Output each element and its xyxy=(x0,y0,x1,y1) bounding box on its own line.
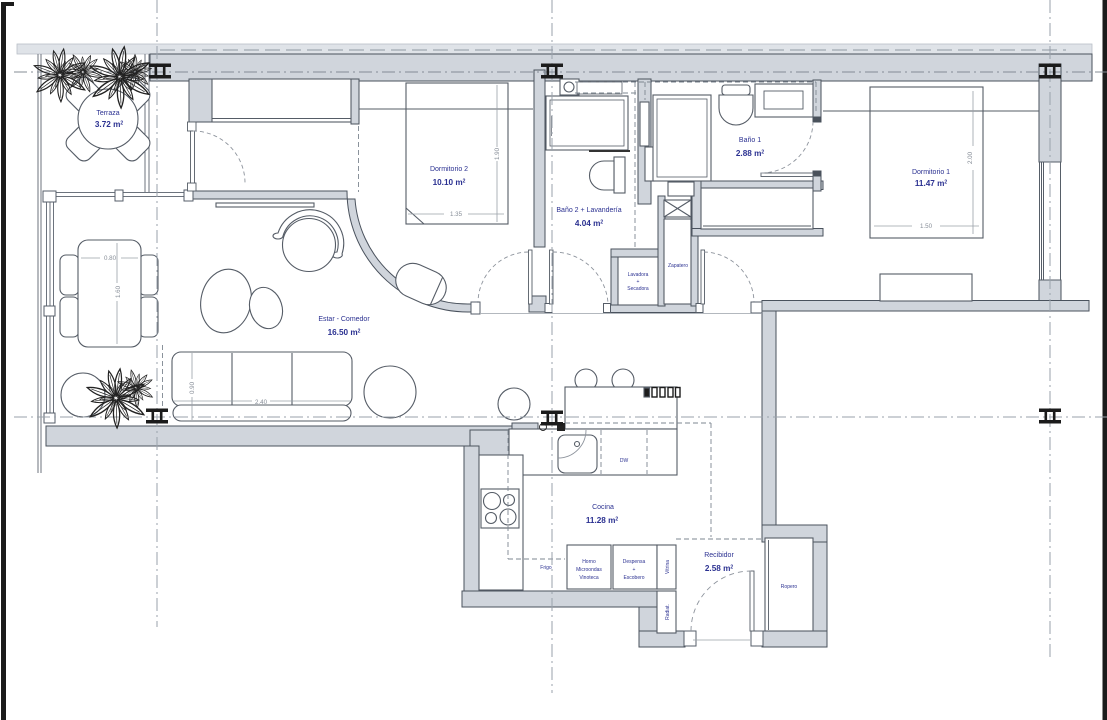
svg-text:2.88 m2: 2.88 m2 xyxy=(736,149,765,158)
svg-text:Lavadora: Lavadora xyxy=(628,272,649,278)
svg-text:Microondas: Microondas xyxy=(576,567,602,573)
svg-text:+: + xyxy=(633,567,636,573)
svg-text:2.00: 2.00 xyxy=(967,151,974,164)
svg-text:Vitrina: Vitrina xyxy=(665,560,671,574)
svg-text:Dormitorio 1: Dormitorio 1 xyxy=(912,169,950,176)
svg-text:1.35: 1.35 xyxy=(450,211,463,218)
svg-text:Baño 2 + Lavandería: Baño 2 + Lavandería xyxy=(556,207,621,214)
svg-text:11.47 m2: 11.47 m2 xyxy=(915,179,948,188)
svg-text:0.90: 0.90 xyxy=(189,381,196,394)
svg-text:Vinoteca: Vinoteca xyxy=(579,575,599,581)
svg-text:Dormitorio 2: Dormitorio 2 xyxy=(430,166,468,173)
svg-text:0.80: 0.80 xyxy=(104,255,117,262)
svg-text:10.10 m2: 10.10 m2 xyxy=(433,178,466,187)
svg-text:Secadora: Secadora xyxy=(627,286,649,292)
svg-text:2.40: 2.40 xyxy=(255,399,268,406)
svg-text:3.72 m2: 3.72 m2 xyxy=(95,120,124,129)
svg-text:Horno: Horno xyxy=(582,559,596,565)
svg-text:Escobero: Escobero xyxy=(623,575,644,581)
svg-text:Recibidor: Recibidor xyxy=(704,552,734,559)
svg-text:Baño 1: Baño 1 xyxy=(739,137,761,144)
svg-text:Cocina: Cocina xyxy=(592,504,614,511)
svg-text:1.60: 1.60 xyxy=(115,285,122,298)
svg-text:Terraza: Terraza xyxy=(96,110,119,117)
svg-text:Frigo: Frigo xyxy=(540,565,552,571)
svg-text:Zapatero: Zapatero xyxy=(668,263,688,269)
svg-text:11.28 m2: 11.28 m2 xyxy=(586,516,619,525)
svg-text:16.50 m2: 16.50 m2 xyxy=(328,328,361,337)
svg-text:1.50: 1.50 xyxy=(920,223,933,230)
svg-text:2.58 m2: 2.58 m2 xyxy=(705,564,734,573)
svg-text:Estar - Comedor: Estar - Comedor xyxy=(318,316,370,323)
svg-text:4.04 m2: 4.04 m2 xyxy=(575,219,604,228)
svg-text:1.90: 1.90 xyxy=(494,147,501,160)
svg-text:+: + xyxy=(637,279,640,285)
svg-text:Despensa: Despensa xyxy=(623,559,646,565)
svg-text:DW: DW xyxy=(620,458,629,464)
svg-text:Radiat.: Radiat. xyxy=(665,604,671,620)
svg-text:Ropero: Ropero xyxy=(781,584,798,590)
